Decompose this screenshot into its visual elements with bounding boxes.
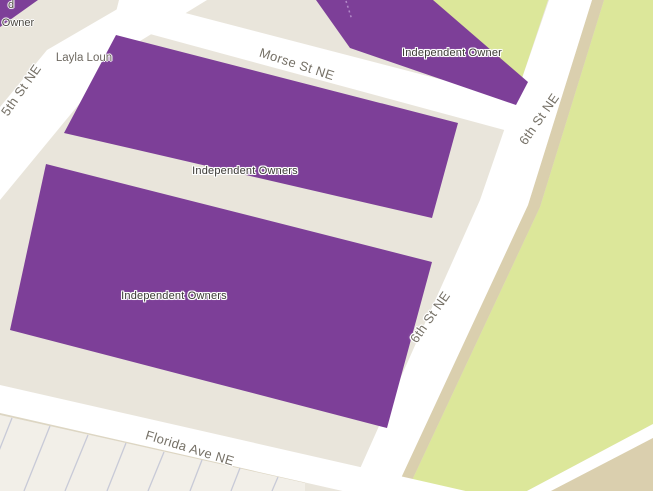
map-canvas[interactable] [0,0,653,491]
map-viewport[interactable]: 5th St NE Morse St NE 6th St NE 6th St N… [0,0,653,491]
